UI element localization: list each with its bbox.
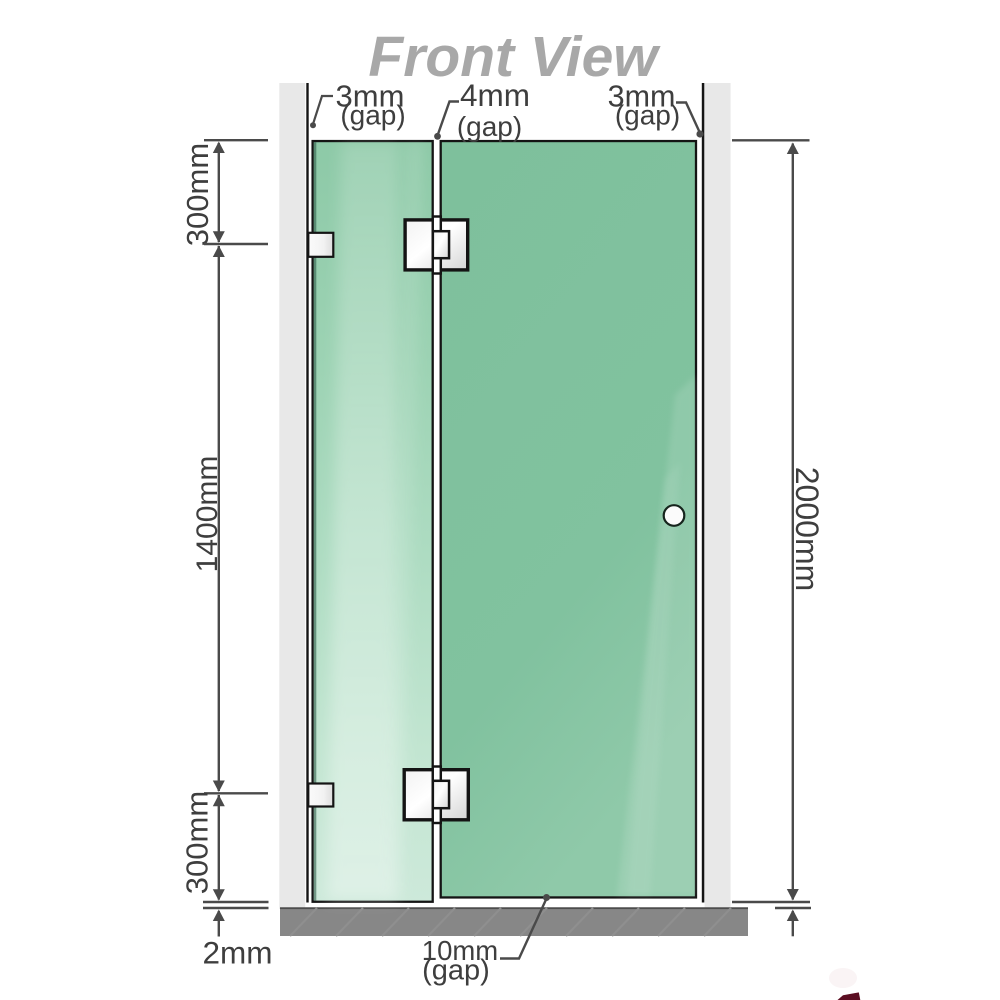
svg-text:2000mm: 2000mm — [789, 467, 825, 592]
svg-text:(gap): (gap) — [457, 111, 522, 142]
svg-text:(gap): (gap) — [422, 955, 490, 987]
svg-text:(gap): (gap) — [340, 100, 405, 131]
svg-text:1400mm: 1400mm — [191, 456, 224, 573]
svg-text:4mm: 4mm — [460, 77, 530, 113]
svg-text:(gap): (gap) — [615, 100, 680, 131]
svg-text:300mm: 300mm — [180, 791, 215, 894]
svg-text:300mm: 300mm — [180, 143, 215, 246]
svg-text:2mm: 2mm — [203, 935, 273, 971]
